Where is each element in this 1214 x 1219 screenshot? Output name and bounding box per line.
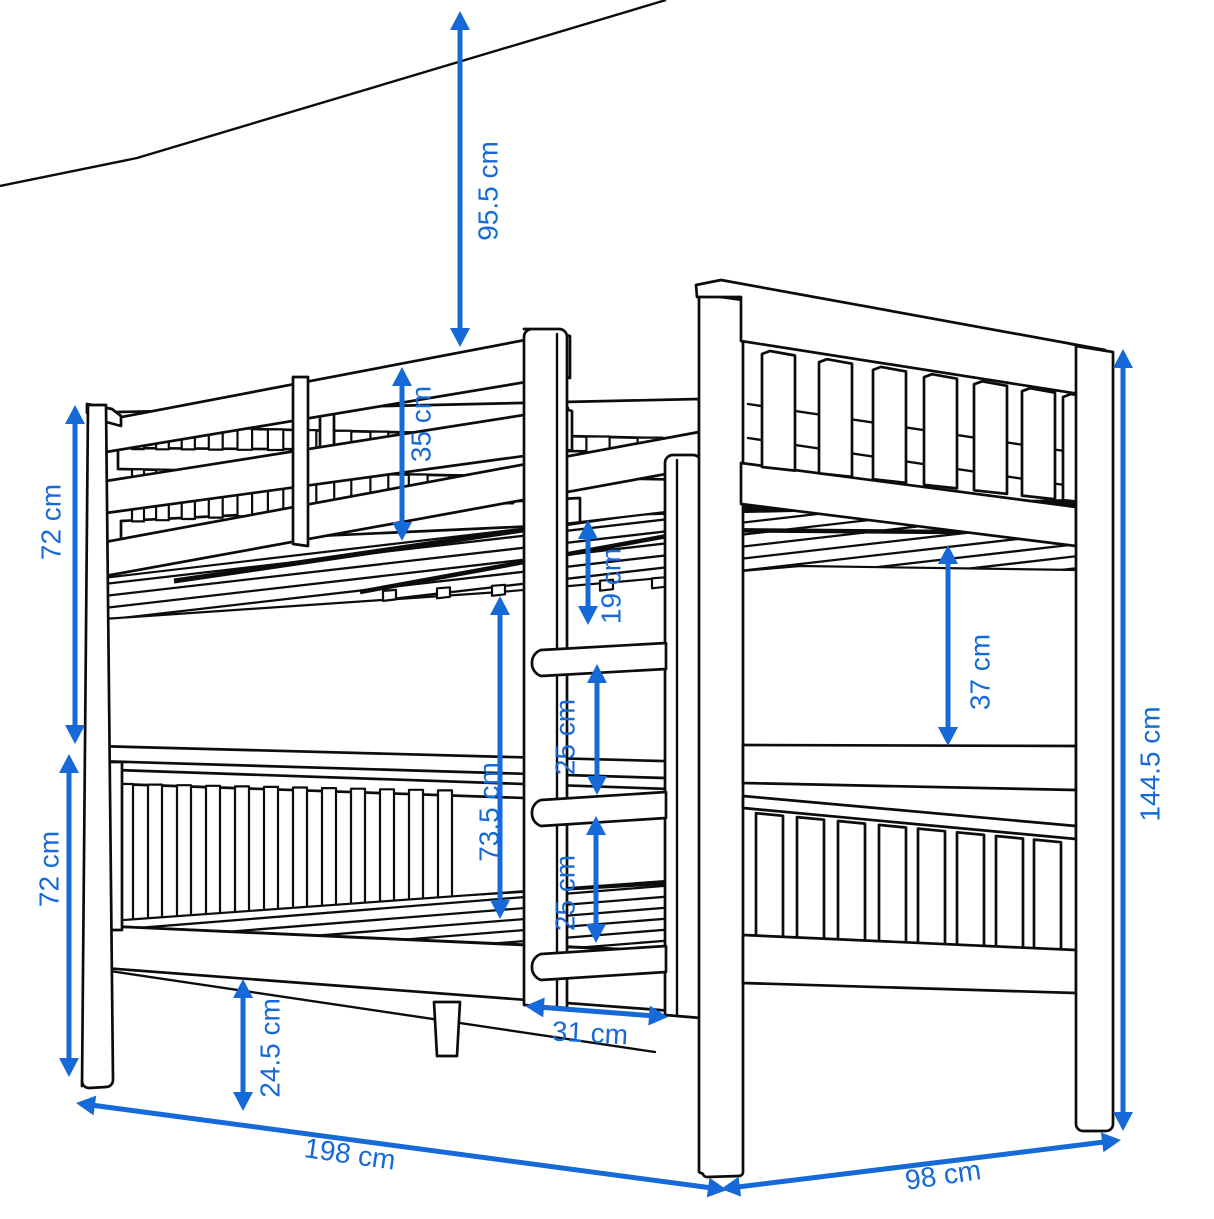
svg-text:35 cm: 35 cm xyxy=(406,386,437,462)
svg-text:31 cm: 31 cm xyxy=(551,1016,629,1051)
svg-text:72 cm: 72 cm xyxy=(36,484,67,560)
svg-text:144.5 cm: 144.5 cm xyxy=(1135,706,1166,821)
svg-text:72 cm: 72 cm xyxy=(34,831,65,907)
svg-text:95.5 cm: 95.5 cm xyxy=(473,141,504,241)
svg-text:24.5 cm: 24.5 cm xyxy=(255,998,286,1098)
svg-text:73.5 cm: 73.5 cm xyxy=(474,762,505,862)
svg-text:37 cm: 37 cm xyxy=(965,634,996,710)
svg-text:25 cm: 25 cm xyxy=(550,855,581,931)
svg-text:19 cm: 19 cm xyxy=(596,548,627,624)
svg-text:25 cm: 25 cm xyxy=(550,699,581,775)
